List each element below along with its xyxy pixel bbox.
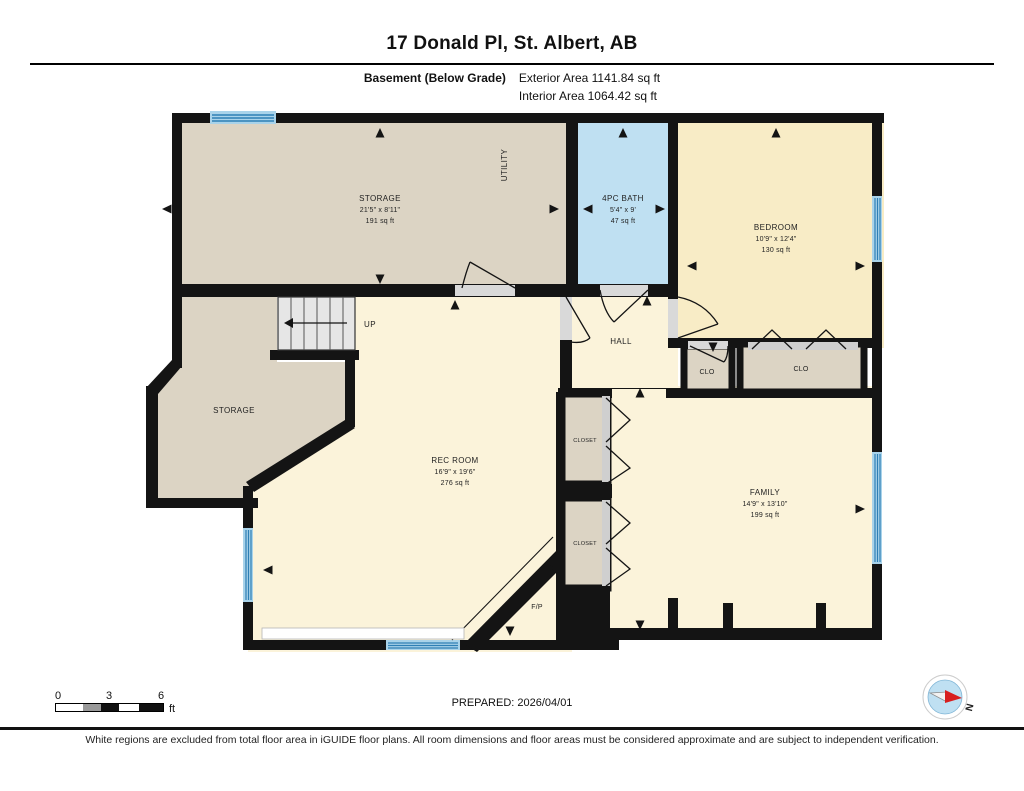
wall-segment: [172, 113, 884, 123]
window: [386, 640, 460, 650]
label-storage-top-dims: 21'5" x 8'11": [360, 207, 401, 214]
disclaimer-text: White regions are excluded from total fl…: [0, 734, 1024, 746]
label-clo-small: CLO: [700, 369, 715, 376]
room-storage-top: [172, 113, 578, 297]
door-threshold: [455, 285, 515, 296]
label-bath-area: 47 sq ft: [611, 218, 636, 225]
door-threshold: [668, 299, 678, 338]
label-bath-name: 4PC BATH: [602, 194, 644, 203]
compass-icon: N: [920, 672, 976, 724]
label-rec-name: REC ROOM: [431, 456, 478, 465]
wall-segment: [607, 628, 882, 640]
compass-north-label: N: [962, 702, 974, 712]
door-threshold: [600, 285, 648, 296]
excluded-region-ledge: [262, 628, 464, 639]
floorplan-drawing: STORAGE 21'5" x 8'11" 191 sq ft UTILITY …: [0, 0, 1024, 791]
stairs: [278, 297, 355, 350]
label-family-area: 199 sq ft: [751, 512, 780, 519]
label-bath-dims: 5'4" x 9': [610, 207, 636, 214]
wall-segment: [146, 386, 158, 508]
window: [243, 528, 253, 602]
label-bedroom-area: 130 sq ft: [762, 247, 791, 254]
label-stairs-up: UP: [364, 320, 376, 329]
wall-segment: [560, 586, 610, 650]
wall-segment: [566, 113, 578, 297]
label-family-dims: 14'9" x 13'10": [742, 501, 787, 508]
wall-segment: [146, 498, 258, 508]
label-storage-top-name: STORAGE: [359, 194, 401, 203]
label-closet-upper: CLOSET: [573, 438, 597, 444]
label-utility: UTILITY: [500, 148, 509, 181]
prepared-date: PREPARED: 2026/04/01: [0, 697, 1024, 709]
label-bedroom-name: BEDROOM: [754, 223, 798, 232]
window: [872, 196, 882, 262]
wall-segment: [723, 603, 733, 638]
window: [872, 452, 882, 564]
label-clo-large: CLO: [794, 366, 809, 373]
label-fireplace: F/P: [531, 604, 543, 611]
floorplan-page: 17 Donald Pl, St. Albert, AB Basement (B…: [0, 0, 1024, 791]
footer-divider: [0, 727, 1024, 730]
label-bedroom-dims: 10'9" x 12'4": [756, 236, 797, 243]
label-storage-lower: STORAGE: [213, 406, 255, 415]
wall-segment: [172, 284, 578, 297]
bifold-track: [748, 342, 858, 350]
wall-segment: [668, 598, 678, 638]
label-family-name: FAMILY: [750, 488, 781, 497]
wall-segment: [816, 603, 826, 638]
label-closet-lower: CLOSET: [573, 541, 597, 547]
bifold-track: [602, 500, 610, 586]
wall-segment: [345, 355, 355, 427]
room-bath: [566, 113, 678, 297]
dimension-arrow-icon: [162, 205, 172, 214]
label-hall: HALL: [610, 337, 632, 346]
wall-segment: [172, 113, 182, 368]
label-rec-dims: 16'9" x 19'6": [435, 469, 476, 476]
label-rec-area: 276 sq ft: [441, 480, 470, 487]
window: [210, 111, 276, 124]
label-storage-top-area: 191 sq ft: [366, 218, 395, 225]
